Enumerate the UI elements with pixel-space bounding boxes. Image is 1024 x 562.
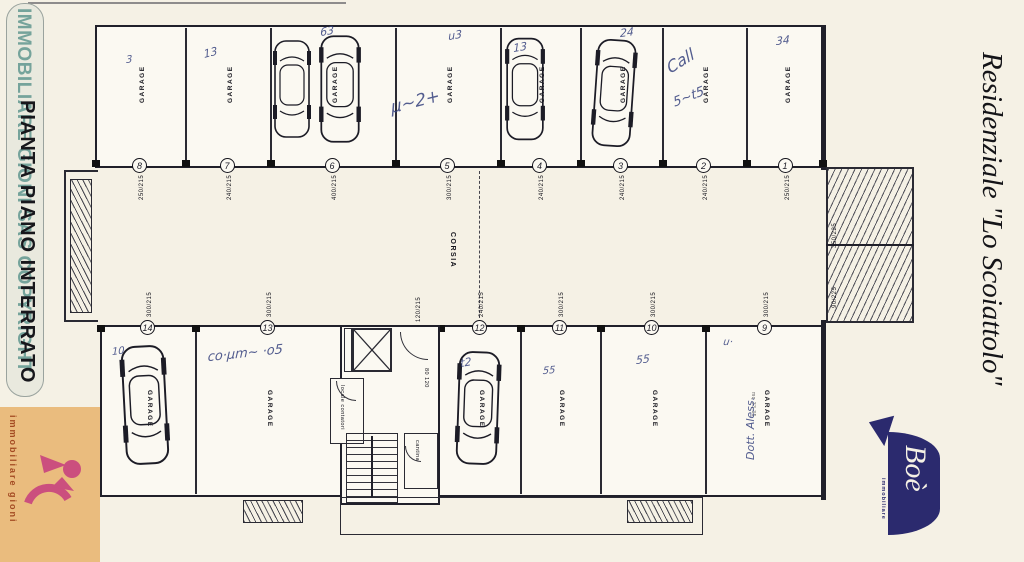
- garage-partition: [520, 328, 522, 494]
- garage-door-dimension: 300/215: [764, 292, 770, 317]
- door-jamb: [702, 325, 710, 332]
- garage-number: 10: [644, 320, 659, 335]
- garage-number: 1: [778, 158, 793, 173]
- door-jamb: [597, 325, 605, 332]
- parked-car-icon: [272, 33, 312, 145]
- garage-door-dimension: 240/215: [539, 175, 545, 200]
- garage-label: GARAGE: [785, 65, 792, 103]
- garage-number: 11: [552, 320, 567, 335]
- garage-number: 12: [472, 320, 487, 335]
- handwritten-note: t2: [460, 355, 472, 370]
- garage-door-dimension: 300/215: [267, 292, 273, 317]
- garage-number: 8: [132, 158, 147, 173]
- garage-label: GARAGE: [266, 390, 273, 428]
- door-jamb: [743, 160, 751, 167]
- right-wall: [821, 25, 826, 170]
- boe-logo-subtext: immobiliare: [880, 478, 886, 520]
- garage-label: GARAGE: [139, 65, 146, 103]
- garage-number: 13: [260, 320, 275, 335]
- handwritten-note: 63: [320, 24, 334, 40]
- handwritten-note: Dott. Aless.: [744, 397, 757, 460]
- stairs-center-line: [371, 436, 373, 498]
- garage-partition: [195, 328, 197, 494]
- garage-door-dimension: 250/215: [139, 175, 145, 200]
- corridor-label: CORSIA: [449, 232, 456, 268]
- door-jamb: [267, 160, 275, 167]
- garage-partition: [705, 328, 707, 494]
- door-dimension: 80 120: [423, 368, 429, 388]
- garage-label: GARAGE: [558, 390, 565, 428]
- handwritten-note: 24: [620, 25, 634, 40]
- garage-number: 7: [220, 158, 235, 173]
- door-jamb: [182, 160, 190, 167]
- door-jamb: [92, 160, 100, 167]
- garage-label: GARAGE: [227, 65, 234, 103]
- core-door-dimension: 120/215: [416, 297, 422, 322]
- garage-label: GARAGE: [763, 390, 770, 428]
- ramp-mid-line: [826, 244, 914, 246]
- garage-partition: [662, 28, 664, 165]
- scanned-floor-plan-page: { "watermark": { "teal_text": "IMMOBILIA…: [0, 0, 1024, 562]
- garage-number: 2: [696, 158, 711, 173]
- door-jamb: [392, 160, 400, 167]
- garage-number: 5: [440, 158, 455, 173]
- garage-door-dimension: 240/215: [703, 175, 709, 200]
- handwritten-note: 10: [112, 345, 125, 358]
- gioni-logo-text: immobiliare gioni: [8, 415, 18, 524]
- door-jamb: [97, 325, 105, 332]
- door-jamb: [577, 160, 585, 167]
- garage-number: 4: [532, 158, 547, 173]
- cellar-room: [404, 433, 438, 489]
- garage-door-dimension: 400/215: [332, 175, 338, 200]
- garage-partition: [580, 28, 582, 165]
- garage-number: 9: [757, 320, 772, 335]
- garage-partition: [746, 28, 748, 165]
- garage-door-dimension: 240/215: [620, 175, 626, 200]
- parked-car-icon: [450, 349, 506, 467]
- door-jamb: [192, 325, 200, 332]
- right-wall: [821, 320, 826, 500]
- handwritten-note: 3: [126, 54, 133, 66]
- garage-partition: [500, 28, 502, 165]
- garage-number: 14: [140, 320, 155, 335]
- light-well: [627, 500, 693, 523]
- garage-door-dimension: 250/215: [785, 175, 791, 200]
- door-jamb: [497, 160, 505, 167]
- light-well: [243, 500, 303, 523]
- door-jamb: [517, 325, 525, 332]
- garage-door-dimension: 300/215: [651, 292, 657, 317]
- door-jamb: [659, 160, 667, 167]
- ramp-dimension: 350/225: [832, 223, 838, 248]
- west-hatched-wall: [70, 179, 92, 313]
- garage-label: GARAGE: [651, 390, 658, 428]
- door-jamb: [819, 160, 827, 167]
- garage-door-dimension: 240/215: [479, 292, 485, 317]
- handwritten-note: 13: [513, 40, 527, 56]
- ramp-dimension: 90/225: [832, 287, 838, 308]
- parked-car-icon: [586, 36, 642, 149]
- garage-number: 6: [325, 158, 340, 173]
- elevator-x-icon: [352, 328, 392, 372]
- garage-door-dimension: 300/215: [147, 292, 153, 317]
- handwritten-note: u·: [722, 337, 733, 348]
- parked-car-icon: [117, 343, 173, 467]
- garage-partition: [185, 28, 187, 165]
- garage-label: GARAGE: [447, 65, 454, 103]
- handwritten-note: 55: [636, 352, 650, 367]
- parked-car-icon: [318, 29, 362, 149]
- garage-door-dimension: 300/215: [559, 292, 565, 317]
- garage-door-dimension: 240/215: [227, 175, 233, 200]
- boe-logo-script: Boè: [898, 445, 932, 492]
- floor-plan: CORSIAGARAGE8250/215GARAGE7240/215GARAGE…: [0, 0, 1024, 562]
- handwritten-note: 55: [542, 365, 555, 377]
- handwritten-note: 34: [776, 33, 790, 48]
- garage-door-dimension: 300/215: [447, 175, 453, 200]
- garage-partition: [600, 328, 602, 494]
- handwritten-note: u3: [448, 28, 462, 44]
- elevator-door-slot: [344, 328, 352, 372]
- garage-number: 3: [613, 158, 628, 173]
